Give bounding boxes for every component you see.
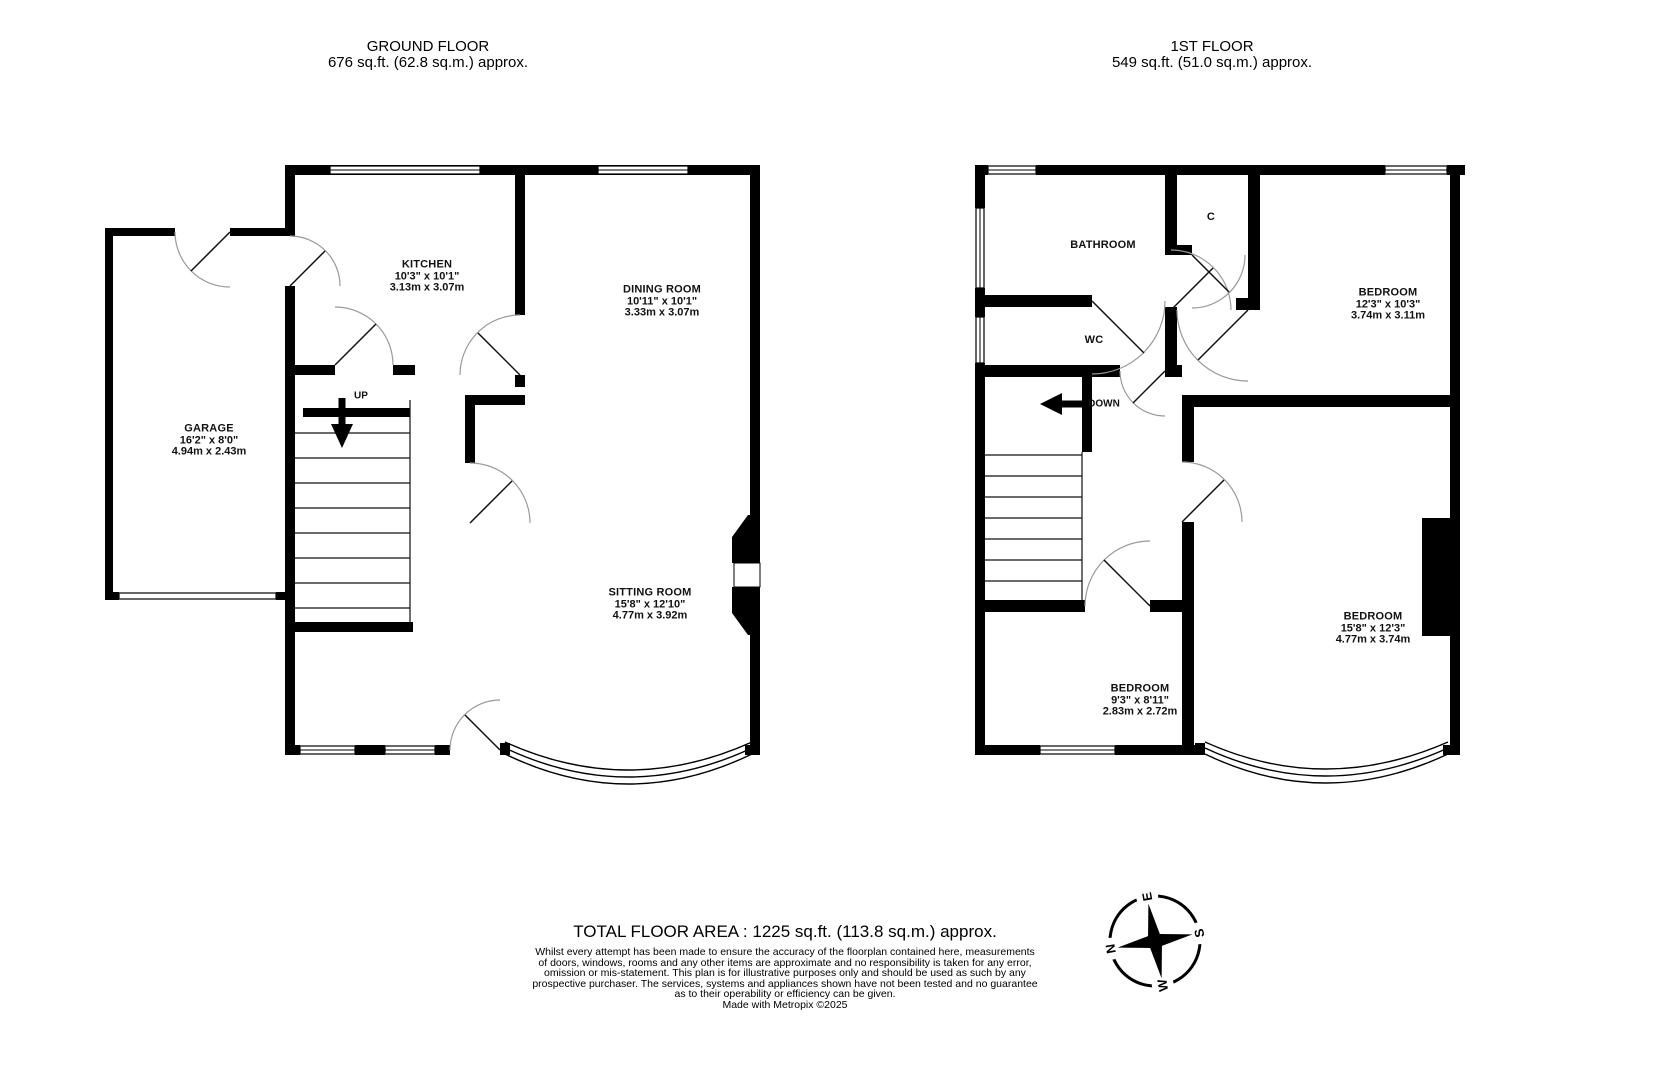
room-dims-m: 3.33m x 3.07m <box>623 308 701 320</box>
room-name: BATHROOM <box>1070 240 1136 252</box>
bathroom-label: BATHROOM <box>1070 240 1136 252</box>
dining-room-label: DINING ROOM 10'11" x 10'1" 3.33m x 3.07m <box>623 285 701 320</box>
first-floor-title: 1ST FLOOR <box>1012 39 1412 55</box>
room-name: SITTING ROOM <box>608 588 691 600</box>
room-name: DINING ROOM <box>623 285 701 297</box>
stairs-up-label: UP <box>354 391 368 402</box>
first-floor-area: 549 sq.ft. (51.0 sq.m.) approx. <box>1012 55 1412 71</box>
first-floor-bay-window <box>1195 742 1448 783</box>
room-name: WC <box>1085 335 1104 347</box>
room-name: BEDROOM <box>1336 612 1411 624</box>
bedroom3-label: BEDROOM 9'3" x 8'11" 2.83m x 2.72m <box>1103 684 1178 719</box>
stairs-down-arrow <box>1040 393 1084 415</box>
cupboard-label: C <box>1207 212 1215 224</box>
room-name: C <box>1207 212 1215 224</box>
disclaimer-line: Whilst every attempt has been made to en… <box>465 947 1105 958</box>
kitchen-label: KITCHEN 10'3" x 10'1" 3.13m x 3.07m <box>390 260 465 295</box>
first-floor-doors <box>1085 250 1248 606</box>
compass-rose: N E S W <box>1095 881 1215 1001</box>
first-floor-plan <box>970 160 1470 810</box>
sitting-room-label: SITTING ROOM 15'8" x 12'10" 4.77m x 3.92… <box>608 588 691 623</box>
room-dims-m: 4.77m x 3.92m <box>608 611 691 623</box>
credit-line: Made with Metropix ©2025 <box>465 1000 1105 1011</box>
ground-floor-title: GROUND FLOOR <box>228 39 628 55</box>
stairs-up-arrow <box>331 398 353 448</box>
first-floor-windows <box>975 165 1447 755</box>
room-name: BEDROOM <box>1351 288 1425 300</box>
room-dims-m: 4.77m x 3.74m <box>1336 635 1411 647</box>
ground-floor-walls <box>105 165 760 755</box>
bedroom1-label: BEDROOM 12'3" x 10'3" 3.74m x 3.11m <box>1351 288 1425 323</box>
bedroom2-label: BEDROOM 15'8" x 12'3" 4.77m x 3.74m <box>1336 612 1411 647</box>
room-name: KITCHEN <box>390 260 465 272</box>
ground-floor-stairs <box>295 398 410 630</box>
garage-label: GARAGE 16'2" x 8'0" 4.94m x 2.43m <box>172 424 247 459</box>
ground-floor-bay-window <box>505 742 752 784</box>
room-name: BEDROOM <box>1103 684 1178 696</box>
ground-floor-title-block: GROUND FLOOR 676 sq.ft. (62.8 sq.m.) app… <box>228 39 628 70</box>
total-floor-area: TOTAL FLOOR AREA : 1225 sq.ft. (113.8 sq… <box>465 922 1105 942</box>
disclaimer: Whilst every attempt has been made to en… <box>465 947 1105 1011</box>
wc-label: WC <box>1085 335 1104 347</box>
room-dims-m: 3.13m x 3.07m <box>390 283 465 295</box>
first-floor-title-block: 1ST FLOOR 549 sq.ft. (51.0 sq.m.) approx… <box>1012 39 1412 70</box>
ground-floor-windows <box>119 166 688 754</box>
room-dims-m: 4.94m x 2.43m <box>172 447 247 459</box>
ground-floor-doors <box>175 232 530 750</box>
first-floor-walls <box>975 165 1465 755</box>
ground-floor-area: 676 sq.ft. (62.8 sq.m.) approx. <box>228 55 628 71</box>
ground-floor-plan <box>100 160 780 810</box>
room-dims-m: 2.83m x 2.72m <box>1103 707 1178 719</box>
room-dims-m: 3.74m x 3.11m <box>1351 311 1425 323</box>
room-name: GARAGE <box>172 424 247 436</box>
first-floor-stairs <box>985 393 1084 600</box>
stairs-down-label: DOWN <box>1088 399 1120 410</box>
ground-floor-chimney <box>732 515 760 635</box>
